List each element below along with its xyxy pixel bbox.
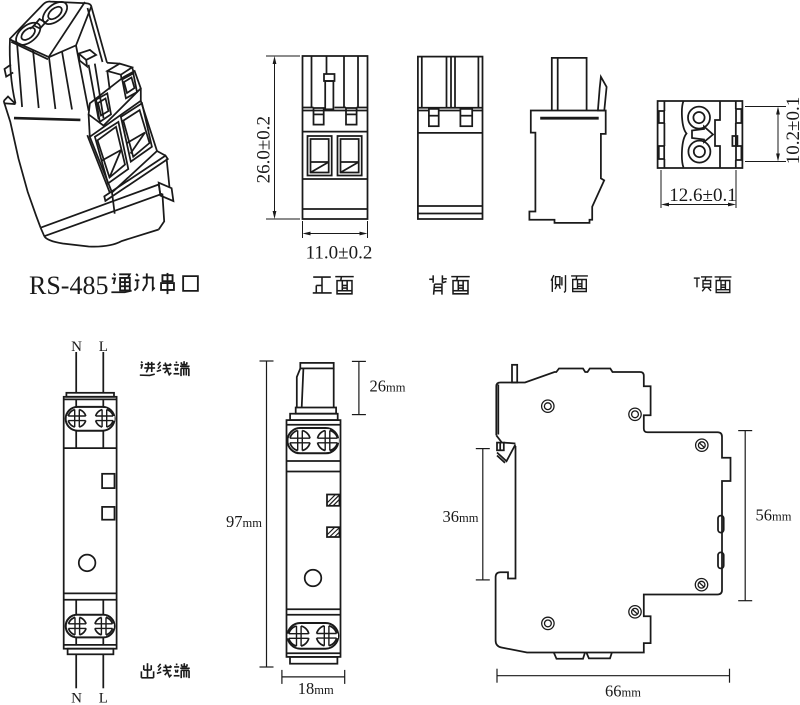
svg-text:L: L	[99, 691, 108, 705]
svg-text:RS-485: RS-485	[29, 271, 108, 300]
svg-text:10.2±0.1: 10.2±0.1	[783, 97, 800, 164]
svg-text:11.0±0.2: 11.0±0.2	[306, 243, 373, 264]
svg-text:N: N	[71, 339, 82, 355]
svg-text:12.6±0.1: 12.6±0.1	[669, 185, 736, 206]
svg-text:L: L	[99, 339, 108, 355]
svg-text:N: N	[71, 691, 82, 705]
svg-text:26.0±0.2: 26.0±0.2	[254, 116, 275, 183]
